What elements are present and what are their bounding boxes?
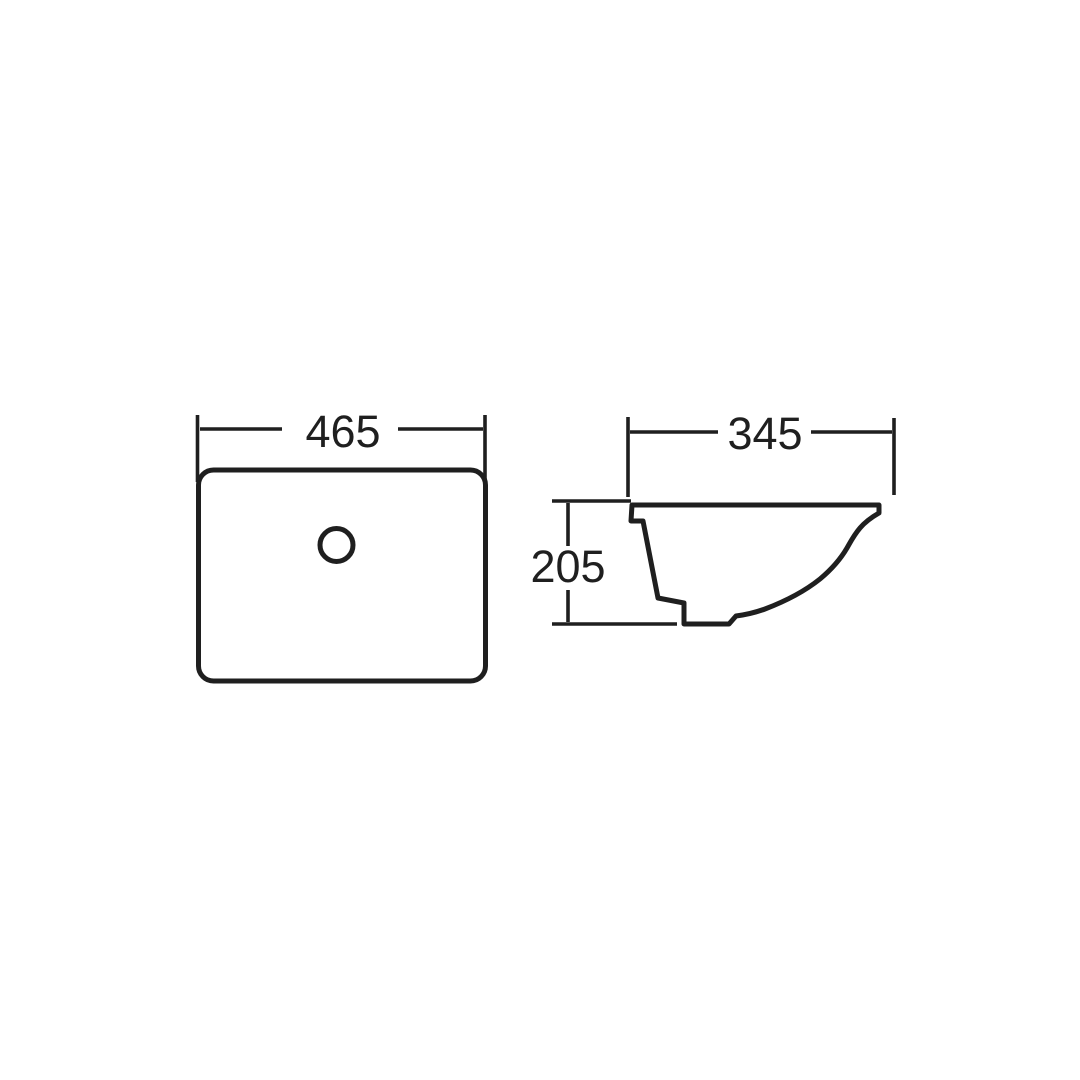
side-view: 345 205 bbox=[530, 408, 894, 624]
side-view-depth-dimension-label: 345 bbox=[727, 408, 802, 459]
basin-profile-outline bbox=[631, 505, 879, 624]
basin-top-outline bbox=[199, 470, 486, 681]
side-view-height-dimension-label: 205 bbox=[530, 541, 605, 592]
drawing-canvas: 465 345 205 bbox=[0, 0, 1080, 1080]
faucet-hole bbox=[320, 529, 353, 562]
side-view-depth-dimension: 345 bbox=[628, 408, 894, 497]
top-view-width-dimension-label: 465 bbox=[305, 406, 380, 457]
technical-drawing: 465 345 205 bbox=[0, 0, 1080, 1080]
top-view: 465 bbox=[198, 406, 486, 681]
side-view-height-dimension: 205 bbox=[530, 501, 677, 624]
